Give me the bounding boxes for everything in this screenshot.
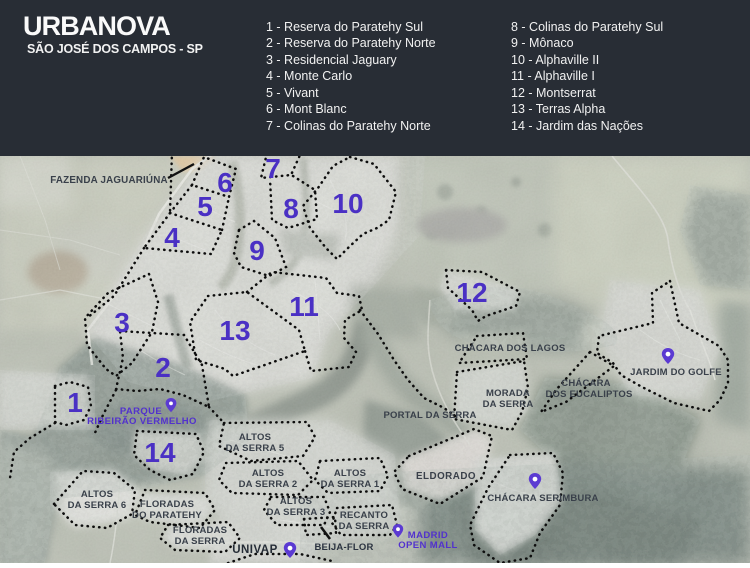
svg-text:2: 2 — [155, 352, 171, 383]
svg-text:1: 1 — [67, 387, 83, 418]
svg-text:ALTOS: ALTOS — [334, 468, 366, 479]
svg-text:DO PARATEHY: DO PARATEHY — [132, 510, 202, 521]
svg-text:6: 6 — [217, 167, 233, 198]
svg-text:3: 3 — [114, 307, 130, 338]
svg-text:ALTOS: ALTOS — [81, 489, 113, 500]
svg-text:ALTOS: ALTOS — [252, 468, 284, 479]
svg-text:CHÁCARA DOS LAGOS: CHÁCARA DOS LAGOS — [455, 343, 566, 354]
svg-text:DA SERRA: DA SERRA — [175, 536, 226, 547]
svg-text:CHÁCARA SERIMBURA: CHÁCARA SERIMBURA — [487, 493, 598, 504]
svg-text:BEIJA-FLOR: BEIJA-FLOR — [315, 542, 374, 553]
svg-text:9: 9 — [249, 235, 265, 266]
svg-text:DA SERRA 3: DA SERRA 3 — [267, 507, 326, 518]
svg-text:ALTOS: ALTOS — [280, 496, 312, 507]
svg-text:RECANTO: RECANTO — [340, 510, 388, 521]
svg-text:PORTAL DA SERRA: PORTAL DA SERRA — [383, 410, 476, 421]
svg-text:JARDIM DO GOLFE: JARDIM DO GOLFE — [630, 367, 722, 378]
svg-text:8: 8 — [283, 193, 299, 224]
svg-text:DA SERRA 2: DA SERRA 2 — [239, 479, 298, 490]
svg-text:5: 5 — [197, 191, 213, 222]
svg-text:UNIVAP: UNIVAP — [232, 544, 278, 556]
svg-text:FLORADAS: FLORADAS — [140, 499, 194, 510]
svg-text:ELDORADO: ELDORADO — [416, 471, 476, 482]
svg-text:DA SERRA 1: DA SERRA 1 — [321, 479, 380, 490]
svg-text:OPEN MALL: OPEN MALL — [398, 540, 458, 551]
svg-text:RIBEIRÃO VERMELHO: RIBEIRÃO VERMELHO — [87, 416, 197, 427]
svg-text:ALTOS: ALTOS — [239, 432, 271, 443]
svg-text:14: 14 — [144, 437, 176, 468]
svg-text:CHÁCARA: CHÁCARA — [561, 378, 610, 389]
svg-text:11: 11 — [289, 291, 319, 322]
svg-text:DA SERRA: DA SERRA — [483, 399, 534, 410]
svg-text:DA SERRA 6: DA SERRA 6 — [68, 500, 127, 511]
svg-text:DOS EUCALIPTOS: DOS EUCALIPTOS — [545, 389, 632, 400]
svg-text:7: 7 — [265, 156, 281, 184]
svg-text:DA SERRA: DA SERRA — [339, 521, 390, 532]
svg-text:DA SERRA 5: DA SERRA 5 — [226, 443, 285, 454]
svg-text:4: 4 — [164, 222, 180, 253]
svg-text:FAZENDA JAGUARIÚNA: FAZENDA JAGUARIÚNA — [50, 174, 168, 186]
svg-text:FLORADAS: FLORADAS — [173, 525, 227, 536]
svg-text:13: 13 — [219, 315, 250, 346]
svg-text:MORADA: MORADA — [486, 388, 530, 399]
svg-text:12: 12 — [456, 277, 487, 308]
svg-text:10: 10 — [332, 188, 363, 219]
